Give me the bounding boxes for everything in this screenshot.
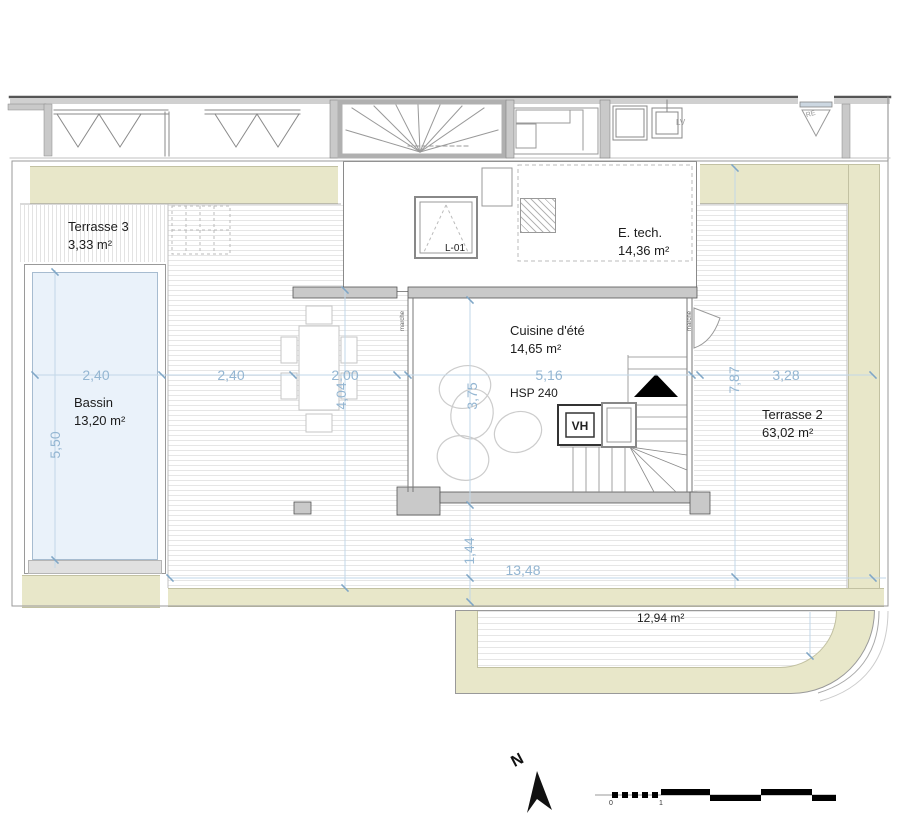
dim-pool-width: 2,40 <box>76 367 116 383</box>
scale-one: 1 <box>659 800 663 807</box>
cuisine-ceiling-height: HSP 240 <box>510 385 558 402</box>
oven-icon <box>613 106 647 140</box>
etech-area: 14,36 m² <box>618 242 669 259</box>
cuisine-name: Cuisine d'été <box>510 322 585 339</box>
winder-stair-icon <box>340 102 504 156</box>
dim-terrasse2-length: 7,87 <box>726 360 742 400</box>
bassin-name: Bassin <box>74 394 113 411</box>
upper-section-strip <box>8 95 890 160</box>
terrasse3-area: 3,33 m² <box>68 236 112 253</box>
door-swing-icon <box>694 308 720 348</box>
stair-direction-arrow-icon <box>634 374 678 397</box>
dim-south-offset: 1,44 <box>461 531 477 571</box>
dim-deck-left: 2,40 <box>211 367 251 383</box>
lower-terrace-area: 12,94 m² <box>637 610 684 627</box>
terrasse2-name: Terrasse 2 <box>762 406 823 423</box>
step-label-right: marche <box>687 306 693 336</box>
roof-vent-label: VH <box>566 419 594 433</box>
counter-icon <box>514 108 598 154</box>
casement-window-icon <box>205 110 300 147</box>
skylight-label: L-01 <box>445 240 465 257</box>
roof-grille-dashed <box>172 206 230 254</box>
cuisine-walls <box>293 287 710 515</box>
dim-terrasse2-width: 3,28 <box>766 367 806 383</box>
dim-cuisine-width: 5,16 <box>529 367 569 383</box>
cuisine-area: 14,65 m² <box>510 340 561 357</box>
casement-window-icon <box>54 110 168 147</box>
north-arrow-icon <box>527 771 552 813</box>
terrasse2-area: 63,02 m² <box>762 424 813 441</box>
scale-zero: 0 <box>609 800 613 807</box>
floor-plan-canvas: Terrasse 3 3,33 m² Bassin 13,20 m² E. te… <box>0 0 912 832</box>
scale-bar <box>595 789 836 801</box>
terrasse3-name: Terrasse 3 <box>68 218 129 235</box>
bassin-area: 13,20 m² <box>74 412 125 429</box>
dim-table-zone: 4,04 <box>333 376 349 416</box>
dim-total-width: 13,48 <box>495 562 551 578</box>
step-label-left: marche <box>400 306 406 336</box>
etech-name: E. tech. <box>618 224 662 241</box>
roof-box <box>482 168 512 206</box>
dishwasher-label: LV <box>676 118 685 127</box>
dim-cuisine-depth: 3,75 <box>464 376 480 416</box>
dim-pool-length: 5,50 <box>47 425 63 465</box>
